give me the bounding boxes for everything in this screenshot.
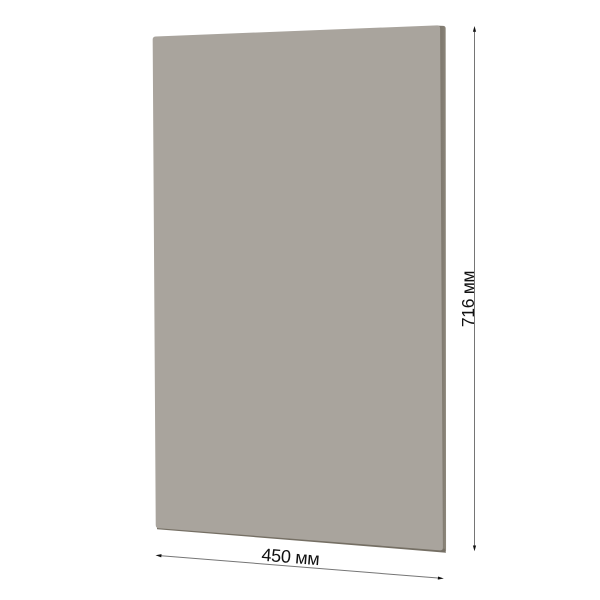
- svg-text:716 мм: 716 мм: [458, 271, 478, 327]
